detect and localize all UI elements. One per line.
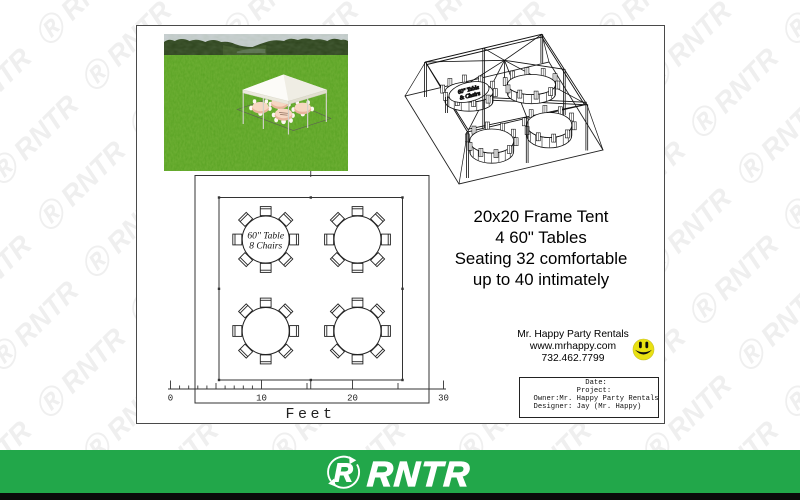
svg-text:8 Chairs: 8 Chairs [249,242,282,252]
svg-text:Feet: Feet [285,406,335,423]
svg-text:20: 20 [347,394,358,404]
svg-text:0: 0 [168,394,173,404]
svg-text:10: 10 [256,394,267,404]
svg-text:30: 30 [438,394,449,404]
svg-text:Ⓡ RNTR: Ⓡ RNTR [775,0,800,51]
svg-text:60'' Table: 60'' Table [247,232,284,242]
svg-text:RNTR: RNTR [366,455,472,494]
svg-text:Ⓡ RNTR: Ⓡ RNTR [729,0,800,4]
